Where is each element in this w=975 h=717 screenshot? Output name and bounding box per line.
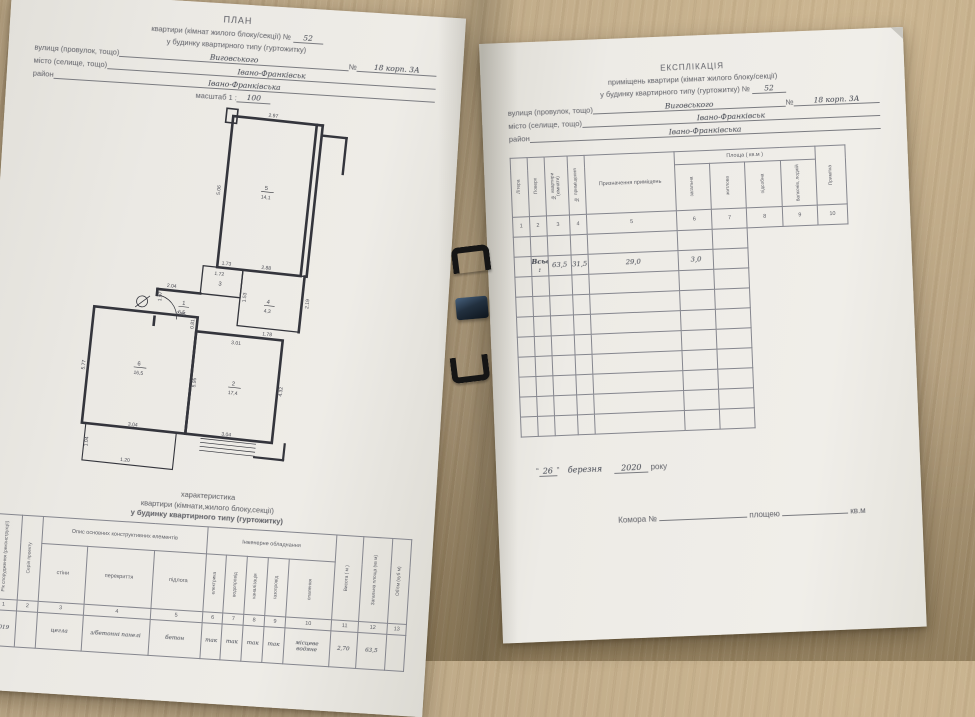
- empty-cell: [682, 349, 718, 370]
- photo-of-documents: { "left_page": { "header": { "title": "П…: [0, 0, 975, 661]
- explication-table: Літера Поверх № квартири (кімнати) № при…: [510, 144, 857, 437]
- empty-cell: [532, 296, 550, 317]
- room-number: 3: [217, 282, 221, 288]
- char-col-walls: стіни: [38, 544, 87, 604]
- expl-col-purpose: Призначення приміщень: [584, 151, 677, 214]
- date-year: 2020: [614, 463, 648, 474]
- room-area: 16,5: [133, 370, 144, 377]
- total-living: 31,5: [571, 254, 589, 275]
- room-number: 6: [137, 362, 141, 368]
- storage-label: Комора №: [618, 515, 657, 526]
- empty-cell: [551, 335, 575, 356]
- empty-cell: [515, 276, 533, 297]
- empty-cell: [552, 375, 576, 396]
- expl-col-number: 6: [676, 209, 712, 230]
- storage-unit: кв.м: [850, 506, 866, 516]
- char-col-number: 1: [0, 598, 17, 611]
- char-value: так: [200, 622, 223, 659]
- expl-col-room-no: № приміщення: [573, 168, 580, 201]
- char-value: 2,70: [329, 631, 358, 669]
- empty-cell: [719, 387, 755, 408]
- total-label: Всього :: [531, 256, 549, 277]
- date-day: 26: [539, 467, 557, 478]
- room-number: 1: [181, 301, 185, 307]
- dim-label: 5.95: [191, 378, 198, 389]
- expl-col-floor: Поверх: [533, 178, 539, 195]
- expl-col-number: 3: [546, 215, 570, 236]
- date-suffix: року: [650, 461, 667, 471]
- room-area: 17,4: [227, 390, 238, 397]
- empty-cell: [517, 336, 535, 357]
- empty-cell: [577, 394, 595, 415]
- storage-area-label: площею: [749, 510, 780, 520]
- char-value: 63,5: [356, 632, 387, 670]
- empty-cell: [535, 355, 553, 376]
- room-number: 2: [231, 382, 235, 388]
- empty-cell: [680, 309, 716, 330]
- empty-cell: [574, 334, 592, 355]
- char-value: так: [220, 624, 243, 661]
- scale-label: масштаб 1 :: [195, 91, 237, 103]
- empty-cell: [533, 316, 551, 337]
- characteristics-table: Рік спорудження (реконструкції) Серія пр…: [0, 513, 412, 672]
- expl-col-note: Примітка: [828, 164, 834, 184]
- expl-col-number: 2: [529, 216, 547, 237]
- empty-cell: [716, 307, 752, 328]
- neighbor-wall-v: [342, 139, 346, 175]
- char-value: [385, 634, 406, 671]
- room-area: 4,3: [263, 309, 271, 316]
- expl-col-living: житлова: [725, 176, 731, 195]
- empty-cell: [715, 287, 751, 308]
- dim-label: 5.77: [80, 360, 87, 371]
- empty-cell: [573, 314, 591, 335]
- dim-label: 3.04: [127, 422, 138, 429]
- city-label: місто (селище, тощо): [33, 56, 107, 70]
- empty-cell: [720, 407, 756, 428]
- dim-label: 3.01: [230, 340, 241, 347]
- empty-cell: [714, 267, 750, 288]
- empty-cell: [554, 414, 578, 435]
- expl-col-number: 8: [747, 206, 783, 227]
- empty-cell: [683, 369, 719, 390]
- dim-label: 1.78: [261, 332, 272, 339]
- empty-cell: [679, 269, 715, 290]
- char-value: [14, 611, 37, 648]
- char-col-electric: електрика: [211, 572, 218, 595]
- dim-label: 2.19: [304, 299, 311, 310]
- expl-col-number: 4: [569, 214, 587, 235]
- empty-cell: [518, 356, 536, 377]
- empty-cell: [716, 327, 752, 348]
- empty-cell: [514, 256, 532, 277]
- empty-cell: [677, 229, 713, 250]
- empty-cell: [577, 414, 595, 435]
- expl-col-total: загальна: [690, 177, 696, 197]
- char-col-volume: Об'єм (куб м): [396, 566, 403, 596]
- district-label: район: [33, 69, 54, 79]
- total-aux: 29,0: [588, 250, 679, 274]
- expl-col-litera: Літера: [517, 180, 523, 195]
- dim-label: 1.53: [241, 292, 248, 303]
- empty-cell: [550, 315, 574, 336]
- total-balcony: 3,0: [678, 249, 714, 270]
- dim-label: 5.06: [215, 185, 222, 196]
- empty-cell: [532, 276, 550, 297]
- apartment-number-value: 52: [293, 34, 324, 45]
- empty-cell: [520, 396, 538, 417]
- expl-col-apt-no: № квартири (кімнати): [550, 163, 563, 207]
- expl-street-label: вулиця (провулок, тощо): [508, 105, 593, 117]
- empty-cell: [552, 355, 576, 376]
- dim-label: 2.97: [268, 113, 279, 120]
- empty-cell: [536, 375, 554, 396]
- empty-cell: [549, 295, 573, 316]
- expl-col-aux: підсобна: [760, 174, 766, 194]
- storage-number-blank: [659, 517, 747, 522]
- empty-cell: [516, 316, 534, 337]
- room-number: 5: [264, 186, 268, 192]
- date-quote-close: ”: [557, 466, 560, 475]
- empty-cell: [680, 289, 716, 310]
- date-line: “26” березня 2020 року: [536, 451, 920, 477]
- right-page-explication: ЕКСПЛІКАЦІЯ приміщень квартири (кімнат ж…: [479, 27, 927, 644]
- char-col-water: водопровід: [232, 572, 239, 597]
- room-area: 14,1: [260, 195, 271, 202]
- dim-label: 2.04: [166, 283, 177, 290]
- char-value: так: [262, 626, 285, 663]
- empty-cell: [717, 347, 753, 368]
- storage-area-blank: [782, 513, 848, 517]
- empty-cell: [553, 395, 577, 416]
- neighbor-wall-h: [321, 136, 346, 139]
- char-col-total-area: Загальна площа (кв м): [371, 555, 380, 606]
- empty-cell: [547, 235, 571, 256]
- empty-cell: [575, 354, 593, 375]
- empty-cell: [570, 234, 588, 255]
- total-area: 63,5: [548, 255, 572, 276]
- date-month: березня: [568, 464, 603, 474]
- storage-line: Комора № площею кв.м: [618, 504, 922, 525]
- binder-clip-middle: [455, 296, 489, 321]
- char-col-gas: газопровід: [274, 575, 281, 599]
- expl-building-no-value: 18 корп. 3А: [793, 93, 879, 106]
- empty-cell: [513, 236, 531, 257]
- char-col-floor: підлога: [150, 551, 206, 612]
- char-col-height: Висота ( м ): [344, 565, 351, 591]
- empty-cell: [520, 416, 538, 437]
- empty-cell: [684, 389, 720, 410]
- empty-cell: [530, 236, 548, 257]
- page-corner-fold: [891, 27, 903, 39]
- empty-cell: [516, 296, 534, 317]
- dim-label: 4.32: [277, 387, 284, 398]
- empty-cell: [576, 374, 594, 395]
- empty-cell: [536, 395, 554, 416]
- expl-no-sign: №: [742, 84, 750, 93]
- dim-label: 1.20: [119, 457, 130, 464]
- empty-cell: [519, 376, 537, 397]
- char-col-heating: опалення: [307, 579, 314, 601]
- empty-cell: [537, 415, 555, 436]
- empty-cell: [684, 409, 720, 430]
- dim-label: 2.88: [260, 265, 271, 272]
- char-value: так: [241, 625, 264, 662]
- dim-label: 1.07: [157, 291, 164, 302]
- expl-col-number: 10: [817, 203, 848, 224]
- dim-label: 0.81: [189, 319, 196, 330]
- expl-apartment-number: 52: [752, 84, 786, 95]
- char-value: бетон: [148, 619, 202, 658]
- expl-col-balcony: балконів, лоджій: [795, 164, 802, 201]
- empty-cell: [681, 329, 717, 350]
- empty-cell: [712, 228, 748, 249]
- expl-col-number: 7: [712, 208, 748, 229]
- expl-district-label: район: [509, 134, 530, 144]
- binder-clip-bottom: [450, 354, 491, 384]
- scale-value: 100: [237, 94, 272, 105]
- room-area: 6,5: [177, 310, 185, 317]
- char-col-series: Серія проекту: [27, 542, 34, 573]
- expl-col-number: 9: [782, 205, 818, 226]
- dim-label: 1.73: [221, 261, 232, 268]
- dim-label: 1.04: [83, 436, 90, 447]
- char-col-floors-struct: перекриття: [84, 546, 154, 608]
- room-number: 4: [266, 300, 271, 306]
- char-value: цегла: [35, 612, 83, 651]
- expl-city-label: місто (селище, тощо): [508, 119, 582, 131]
- expl-col-number: 1: [512, 216, 530, 237]
- floor-plan-drawing: 2.97 5.06 2.88 1.73 2.04 1.72 2.85 1.07 …: [54, 95, 387, 496]
- dim-label: 1.72: [214, 271, 225, 278]
- char-value: з/бетонні панелі: [81, 615, 150, 655]
- binder-clip-top: [451, 244, 492, 274]
- empty-cell: [713, 247, 749, 268]
- char-col-sewer: каналізація: [253, 573, 260, 599]
- char-col-year: Рік спорудження (реконструкції): [1, 521, 11, 592]
- empty-cell: [572, 274, 590, 295]
- empty-cell: [573, 294, 591, 315]
- empty-cell: [594, 410, 685, 434]
- dim-label: 3.04: [221, 432, 232, 439]
- empty-cell: [548, 275, 572, 296]
- empty-cell: [718, 367, 754, 388]
- left-page-plan: ПЛАН квартири (кімнат жилого блоку/секці…: [0, 0, 466, 717]
- empty-cell: [534, 335, 552, 356]
